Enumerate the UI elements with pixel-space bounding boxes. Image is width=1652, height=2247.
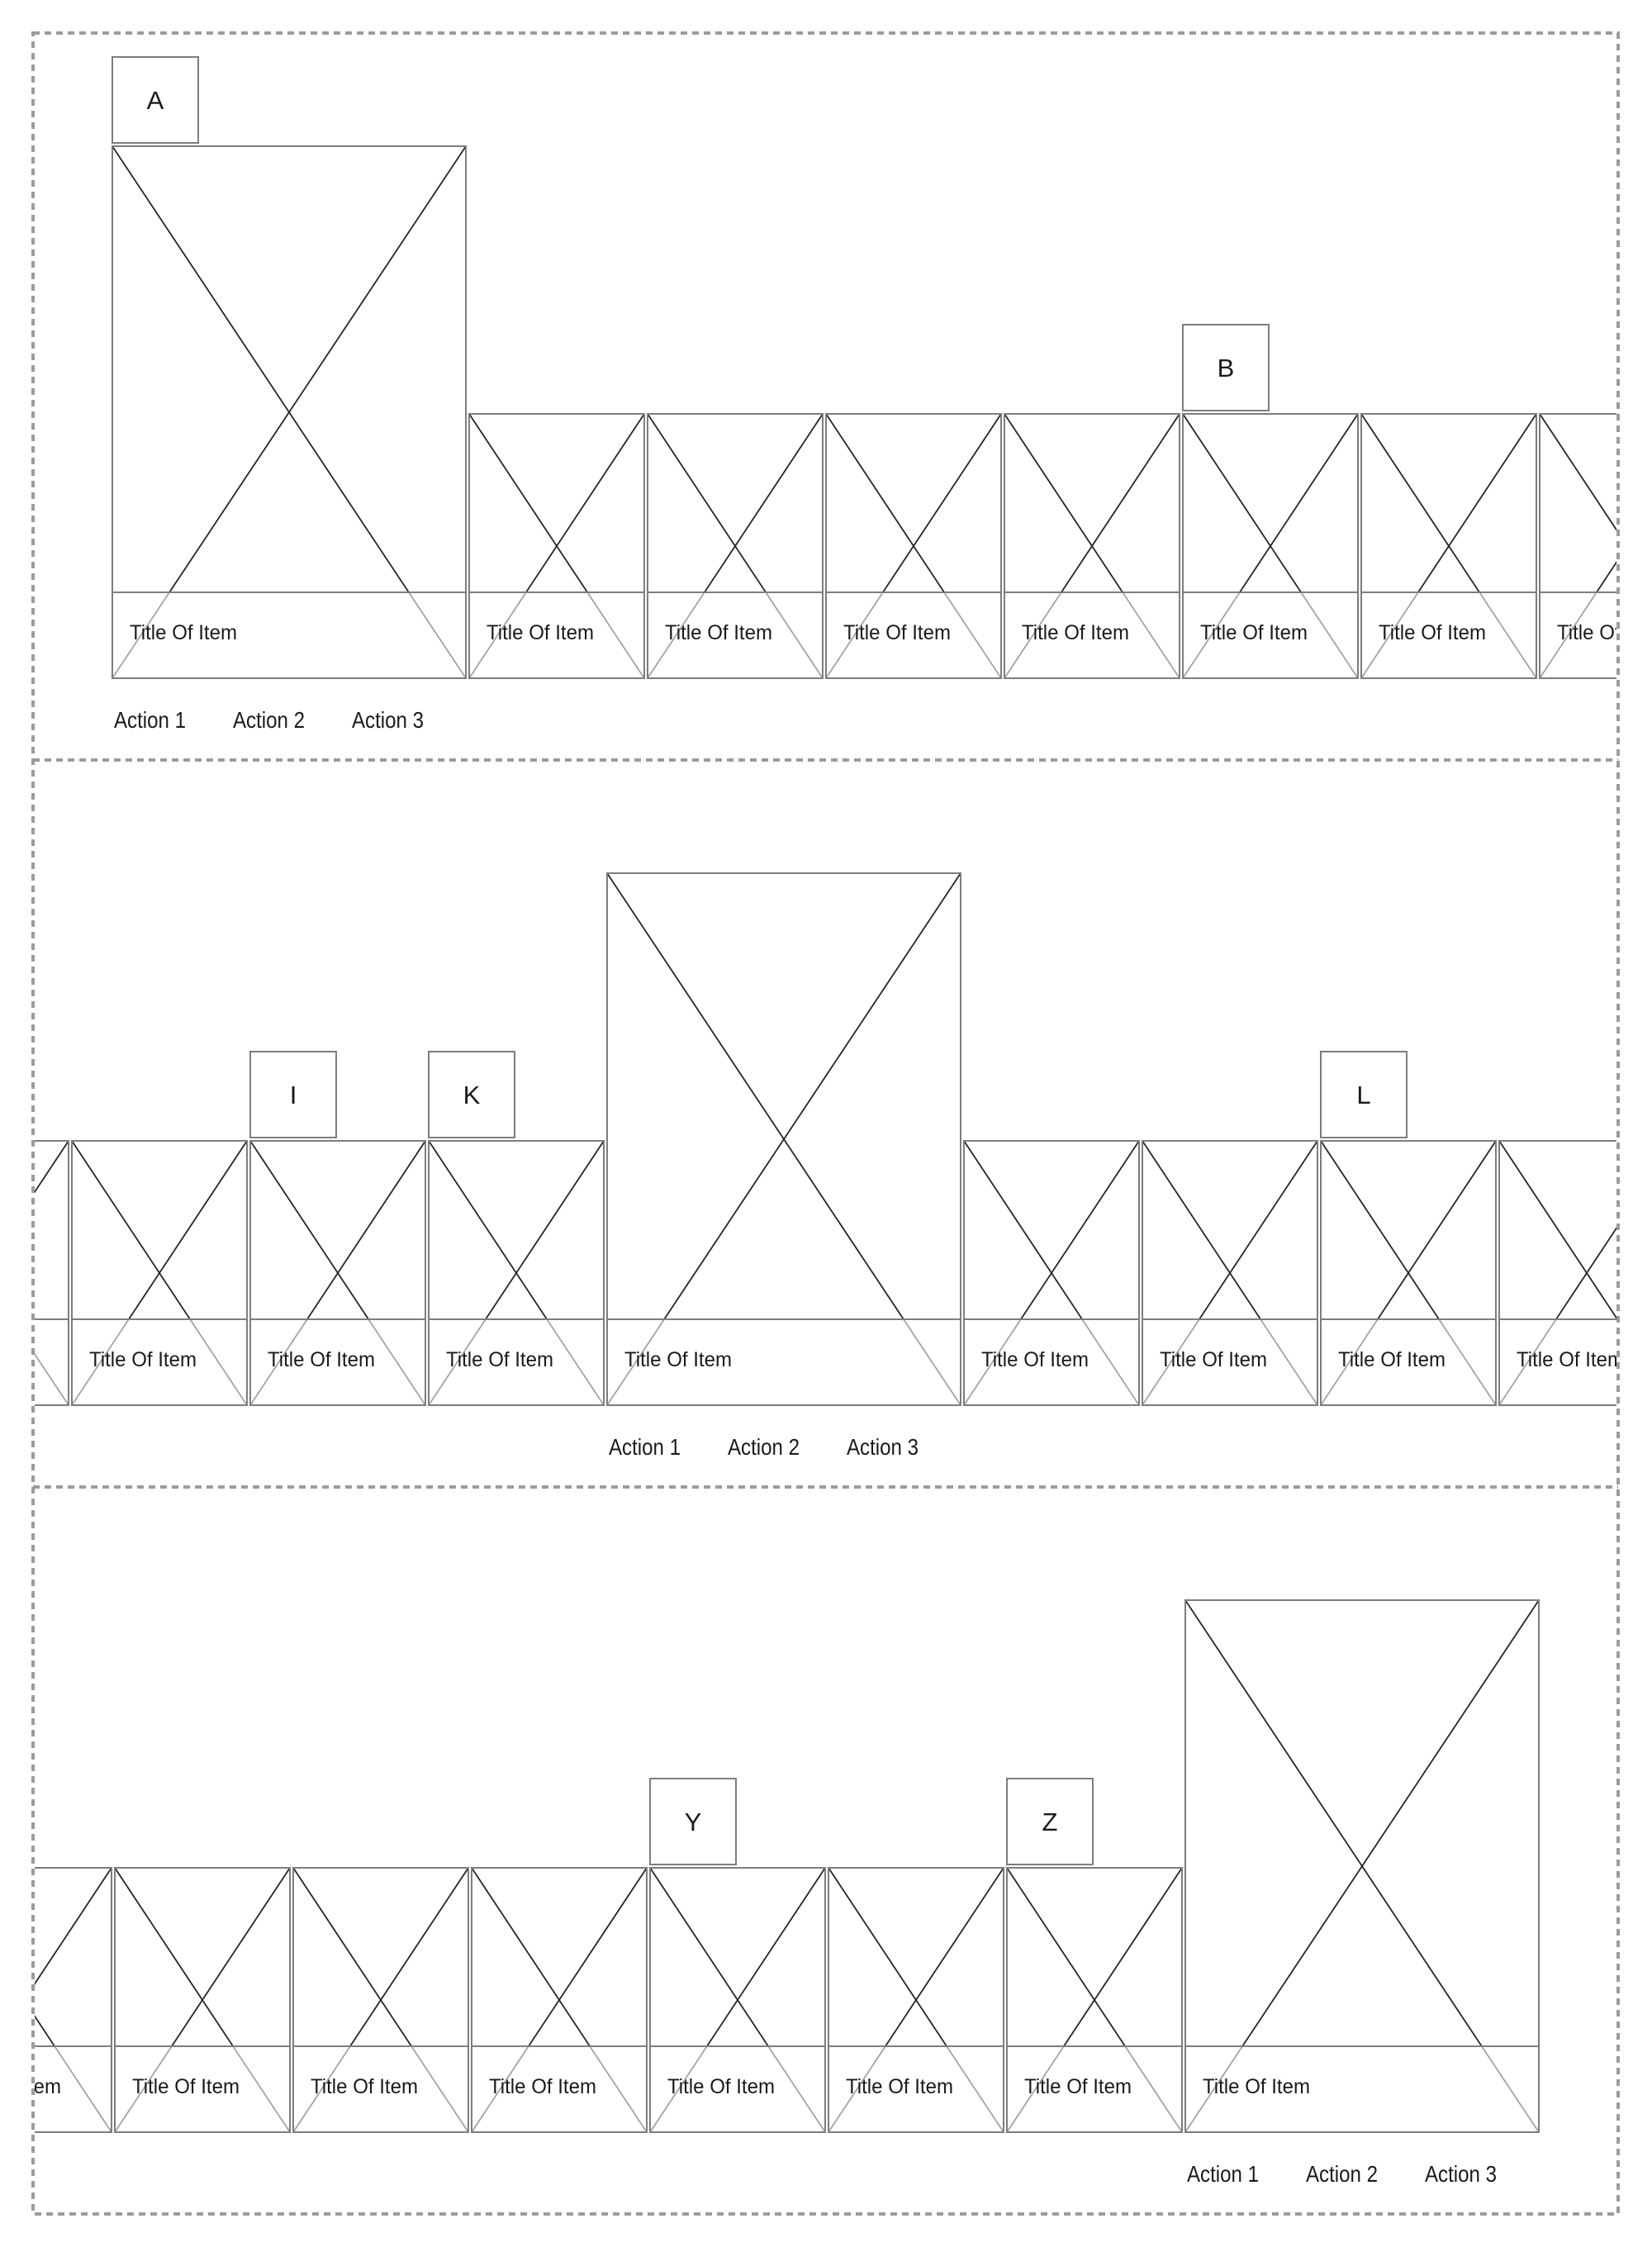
svg-text:Title Of Item: Title Of Item [0, 1348, 18, 1371]
svg-text:Action 2: Action 2 [1306, 2161, 1378, 2187]
svg-text:Action 1: Action 1 [114, 707, 186, 733]
svg-text:Action 2: Action 2 [233, 707, 305, 733]
svg-text:B: B [1218, 354, 1235, 382]
svg-text:Title Of Item: Title Of Item [1203, 2075, 1310, 2098]
svg-text:Z: Z [1042, 1808, 1058, 1836]
svg-text:Title Of Item: Title Of Item [981, 1348, 1089, 1371]
svg-text:Title Of Item: Title Of Item [624, 1348, 732, 1371]
svg-text:Title Of Item: Title Of Item [1022, 621, 1129, 644]
svg-text:Action 3: Action 3 [1425, 2161, 1497, 2187]
svg-text:Title Of Item: Title Of Item [1338, 1348, 1445, 1371]
svg-text:L: L [1356, 1081, 1370, 1109]
svg-text:Action 3: Action 3 [352, 707, 424, 733]
svg-text:Title Of Item: Title Of Item [843, 621, 951, 644]
svg-text:Title Of Item: Title Of Item [665, 621, 772, 644]
svg-text:Title Of Item: Title Of Item [0, 2075, 61, 2098]
svg-text:Action 1: Action 1 [1187, 2161, 1259, 2187]
svg-text:Action 2: Action 2 [728, 1434, 800, 1460]
svg-text:Title Of Item: Title Of Item [489, 2075, 596, 2098]
svg-text:Title Of Item: Title Of Item [1557, 621, 1652, 644]
svg-text:Action 1: Action 1 [609, 1434, 681, 1460]
svg-text:Title Of Item: Title Of Item [1379, 621, 1486, 644]
svg-text:Title Of Item: Title Of Item [846, 2075, 953, 2098]
svg-text:Title Of Item: Title Of Item [446, 1348, 553, 1371]
svg-text:I: I [290, 1081, 297, 1109]
svg-text:Title Of Item: Title Of Item [1024, 2075, 1132, 2098]
svg-text:Title Of Item: Title Of Item [667, 2075, 775, 2098]
svg-text:Title Of Item: Title Of Item [1200, 621, 1308, 644]
svg-text:Title Of Item: Title Of Item [89, 1348, 197, 1371]
svg-text:Y: Y [685, 1808, 702, 1836]
svg-text:Title Of Item: Title Of Item [1517, 1348, 1624, 1371]
svg-text:A: A [147, 86, 164, 115]
svg-text:Title Of Item: Title Of Item [132, 2075, 240, 2098]
svg-text:Title Of Item: Title Of Item [130, 621, 237, 644]
svg-text:Title Of Item: Title Of Item [311, 2075, 418, 2098]
svg-text:Action 3: Action 3 [847, 1434, 919, 1460]
svg-text:K: K [463, 1081, 481, 1109]
svg-text:Title Of Item: Title Of Item [487, 621, 594, 644]
svg-text:Title Of Item: Title Of Item [268, 1348, 375, 1371]
svg-text:Title Of Item: Title Of Item [1160, 1348, 1267, 1371]
